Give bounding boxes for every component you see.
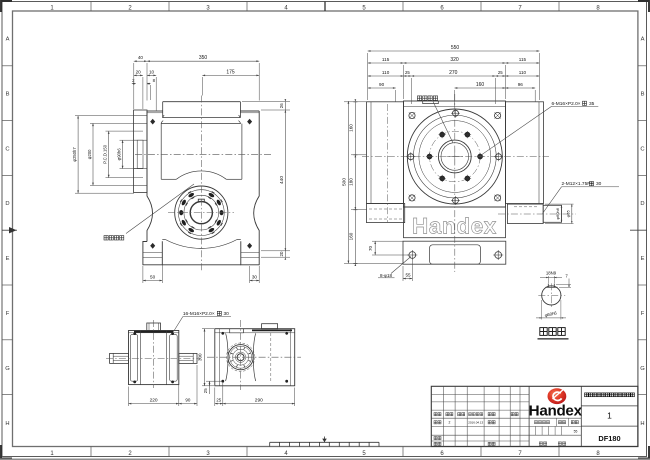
svg-text:DF180: DF180 — [598, 434, 620, 443]
svg-text:40: 40 — [138, 55, 144, 60]
svg-text:25: 25 — [498, 70, 503, 75]
svg-text:175: 175 — [226, 69, 235, 75]
svg-text:A: A — [641, 37, 645, 43]
svg-text:C: C — [640, 147, 644, 153]
svg-text:25: 25 — [405, 70, 410, 75]
svg-text:φ90h6: φ90h6 — [117, 148, 122, 161]
svg-text:P.C.D.150: P.C.D.150 — [103, 144, 108, 163]
svg-text:290: 290 — [255, 398, 263, 404]
svg-text:90: 90 — [379, 82, 385, 87]
svg-text:10: 10 — [149, 69, 155, 74]
svg-text:26: 26 — [279, 103, 284, 108]
svg-text:20: 20 — [136, 69, 142, 74]
svg-text:Handex: Handex — [529, 403, 583, 420]
svg-text:35: 35 — [589, 101, 595, 107]
svg-text:8-φ18: 8-φ18 — [380, 273, 392, 278]
svg-text:φ250h7: φ250h7 — [72, 147, 77, 162]
svg-text:90: 90 — [185, 398, 191, 403]
svg-text:16-M16×P2.0×: 16-M16×P2.0× — [183, 311, 215, 317]
svg-text:2: 2 — [448, 421, 450, 425]
svg-text:55: 55 — [574, 430, 578, 434]
svg-text:220: 220 — [150, 398, 158, 404]
svg-text:2016.04.13: 2016.04.13 — [468, 421, 483, 425]
svg-text:18N9: 18N9 — [546, 271, 557, 276]
svg-text:φ60h6: φ60h6 — [555, 207, 560, 219]
svg-text:φ200: φ200 — [87, 149, 92, 159]
svg-text:20: 20 — [279, 251, 284, 256]
svg-text:6-M16×P2.0×: 6-M16×P2.0× — [552, 101, 581, 107]
svg-text:270: 270 — [449, 70, 458, 76]
svg-text:55: 55 — [405, 273, 411, 278]
svg-text:180: 180 — [349, 178, 354, 186]
svg-text:96: 96 — [518, 82, 524, 87]
svg-text:1: 1 — [607, 411, 612, 421]
svg-text:30: 30 — [252, 275, 258, 280]
svg-text:2-M12×1.75P×: 2-M12×1.75P× — [562, 181, 594, 187]
svg-text:H: H — [640, 421, 644, 427]
svg-text:160: 160 — [476, 82, 485, 88]
svg-text:500: 500 — [342, 178, 348, 186]
svg-text:110: 110 — [519, 70, 527, 75]
svg-text:70: 70 — [368, 246, 373, 252]
svg-text:H: H — [5, 421, 9, 427]
svg-text:Handex: Handex — [412, 214, 497, 239]
svg-text:300: 300 — [198, 353, 203, 361]
svg-text:25: 25 — [216, 398, 221, 403]
svg-text:550: 550 — [451, 45, 460, 51]
svg-text:E: E — [6, 256, 10, 262]
svg-text:30: 30 — [224, 311, 230, 317]
svg-text:30: 30 — [596, 181, 602, 187]
svg-text:50: 50 — [150, 275, 156, 280]
svg-text:110: 110 — [382, 70, 390, 75]
svg-text:E: E — [641, 256, 645, 262]
svg-text:G: G — [640, 366, 645, 372]
svg-text:25: 25 — [203, 388, 208, 393]
svg-text:320: 320 — [450, 57, 459, 63]
svg-text:160: 160 — [349, 124, 354, 132]
svg-text:B: B — [641, 92, 645, 98]
svg-text:F: F — [641, 311, 645, 317]
svg-text:115: 115 — [382, 57, 390, 62]
svg-text:115: 115 — [519, 57, 527, 62]
svg-text:D: D — [5, 201, 9, 207]
svg-text:F: F — [6, 311, 10, 317]
svg-text:350: 350 — [199, 55, 208, 61]
svg-text:160: 160 — [349, 232, 354, 240]
svg-text:φ65: φ65 — [565, 210, 570, 218]
svg-text:G: G — [5, 366, 10, 372]
svg-text:440: 440 — [279, 176, 285, 184]
svg-text:C: C — [5, 147, 9, 153]
svg-text:A: A — [6, 37, 10, 43]
svg-text:D: D — [640, 201, 644, 207]
svg-text:B: B — [6, 92, 10, 98]
